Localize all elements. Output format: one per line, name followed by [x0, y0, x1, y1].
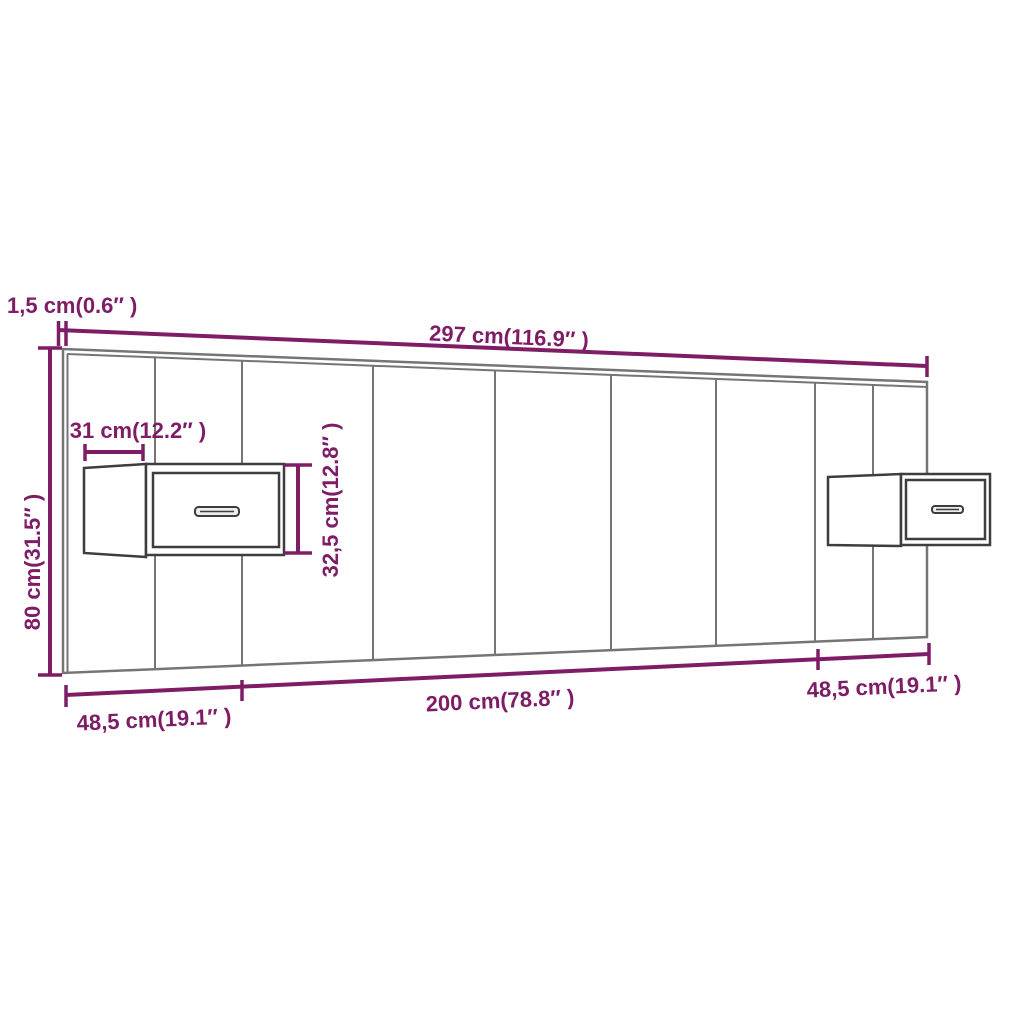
dim-left-section-label: 48,5 cm(19.1″ ) — [76, 703, 232, 735]
right-cabinet-side-panel — [828, 474, 901, 546]
dim-cabinet-depth-label: 31 cm(12.2″ ) — [70, 418, 207, 443]
dim-height-label: 80 cm(31.5″ ) — [20, 494, 45, 631]
diagram-canvas: 1,5 cm(0.6″ ) 297 cm(116.9″ ) 80 cm(31.5… — [0, 0, 1024, 1024]
right-cabinet — [828, 474, 990, 546]
dim-thickness-label: 1,5 cm(0.6″ ) — [7, 293, 137, 318]
dim-right-section-label: 48,5 cm(19.1″ ) — [806, 670, 962, 702]
dimension-diagram: 1,5 cm(0.6″ ) 297 cm(116.9″ ) 80 cm(31.5… — [0, 0, 1024, 1024]
left-cabinet — [84, 464, 284, 557]
dim-cabinet-height-label: 32,5 cm(12.8″ ) — [318, 423, 343, 578]
dim-center-section-label: 200 cm(78.8″ ) — [425, 685, 575, 717]
left-cabinet-side-panel — [84, 464, 146, 557]
dim-height: 80 cm(31.5″ ) — [20, 348, 62, 675]
dim-thickness: 1,5 cm(0.6″ ) — [7, 293, 137, 346]
